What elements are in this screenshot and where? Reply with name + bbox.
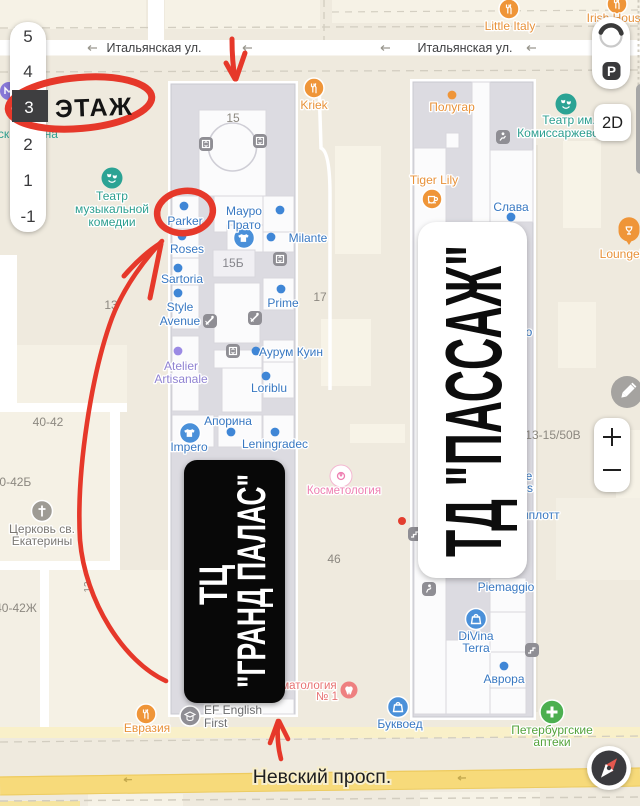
svg-text:Atelier: Atelier bbox=[164, 359, 198, 373]
svg-text:№ 1: № 1 bbox=[316, 691, 338, 703]
svg-text:Parker: Parker bbox=[167, 214, 202, 228]
svg-text:15Б: 15Б bbox=[222, 256, 243, 270]
svg-text:Leningradec: Leningradec bbox=[242, 437, 308, 451]
svg-text:Kriek: Kriek bbox=[300, 98, 328, 112]
svg-text:Prime: Prime bbox=[267, 296, 299, 310]
svg-text:s: s bbox=[527, 481, 533, 495]
svg-text:Little Italy: Little Italy bbox=[485, 19, 536, 33]
svg-text:Artisanale: Artisanale bbox=[154, 372, 208, 386]
svg-text:EF English: EF English bbox=[204, 703, 262, 717]
svg-text:ТД "ПАССАЖ": ТД "ПАССАЖ" bbox=[429, 245, 518, 557]
svg-text:Milante: Milante bbox=[289, 231, 328, 245]
svg-text:ЭТАЖ: ЭТАЖ bbox=[55, 93, 134, 124]
svg-text:Косметология: Косметология bbox=[307, 485, 381, 497]
svg-text:Евразия: Евразия bbox=[124, 721, 170, 735]
svg-text:Мауро: Мауро bbox=[226, 204, 262, 218]
svg-text:аптеки: аптеки bbox=[533, 735, 570, 749]
svg-text:Piemaggio: Piemaggio bbox=[478, 580, 535, 594]
svg-text:Loriblu: Loriblu bbox=[251, 381, 287, 395]
svg-text:Аврора: Аврора bbox=[483, 672, 524, 686]
svg-text:40-42Б: 40-42Б bbox=[0, 475, 31, 489]
svg-text:13-15/50В: 13-15/50В bbox=[525, 428, 580, 442]
svg-text:Roses: Roses bbox=[170, 242, 204, 256]
svg-text:Avenue: Avenue bbox=[160, 314, 201, 328]
svg-text:Style: Style bbox=[167, 300, 194, 314]
svg-text:2D: 2D bbox=[602, 114, 623, 132]
svg-text:Итальянская ул.: Итальянская ул. bbox=[107, 41, 202, 55]
svg-text:17: 17 bbox=[313, 290, 327, 304]
svg-text:Апорина: Апорина bbox=[204, 414, 252, 428]
svg-text:1: 1 bbox=[23, 171, 32, 190]
svg-text:Слава: Слава bbox=[493, 200, 529, 214]
svg-text:5: 5 bbox=[23, 27, 32, 46]
svg-text:Полугар: Полугар bbox=[429, 100, 475, 114]
svg-text:Аурум Куин: Аурум Куин bbox=[259, 345, 323, 359]
svg-text:-1: -1 bbox=[20, 207, 35, 226]
svg-text:Екатерины: Екатерины bbox=[12, 534, 73, 548]
svg-text:Театр: Театр bbox=[96, 189, 128, 203]
svg-text:46: 46 bbox=[327, 552, 341, 566]
svg-text:Tiger Lily: Tiger Lily bbox=[410, 173, 458, 187]
svg-text:3: 3 bbox=[24, 98, 33, 117]
svg-text:Буквоед: Буквоед bbox=[377, 717, 422, 731]
svg-text:40-42: 40-42 bbox=[33, 415, 64, 429]
svg-text:2: 2 bbox=[23, 135, 32, 154]
svg-text:"ГРАНД ПАЛАС": "ГРАНД ПАЛАС" bbox=[230, 474, 274, 688]
svg-text:комедии: комедии bbox=[88, 215, 135, 229]
svg-text:Impero: Impero bbox=[170, 440, 208, 454]
svg-text:Sartoria: Sartoria bbox=[161, 272, 203, 286]
svg-text:Прато: Прато bbox=[227, 218, 261, 232]
svg-text:40-42Ж: 40-42Ж bbox=[0, 601, 37, 615]
svg-text:P: P bbox=[607, 64, 616, 79]
svg-text:Итальянская ул.: Итальянская ул. bbox=[418, 41, 513, 55]
svg-text:15: 15 bbox=[226, 111, 240, 125]
svg-text:First: First bbox=[204, 716, 228, 730]
svg-text:Театр им.: Театр им. bbox=[542, 113, 596, 127]
svg-text:Невский просп.: Невский просп. bbox=[253, 766, 392, 788]
svg-text:4: 4 bbox=[23, 62, 32, 81]
svg-text:LoungeR: LoungeR bbox=[600, 247, 640, 261]
svg-text:музыкальной: музыкальной bbox=[75, 202, 149, 216]
svg-text:Terra: Terra bbox=[462, 641, 490, 655]
